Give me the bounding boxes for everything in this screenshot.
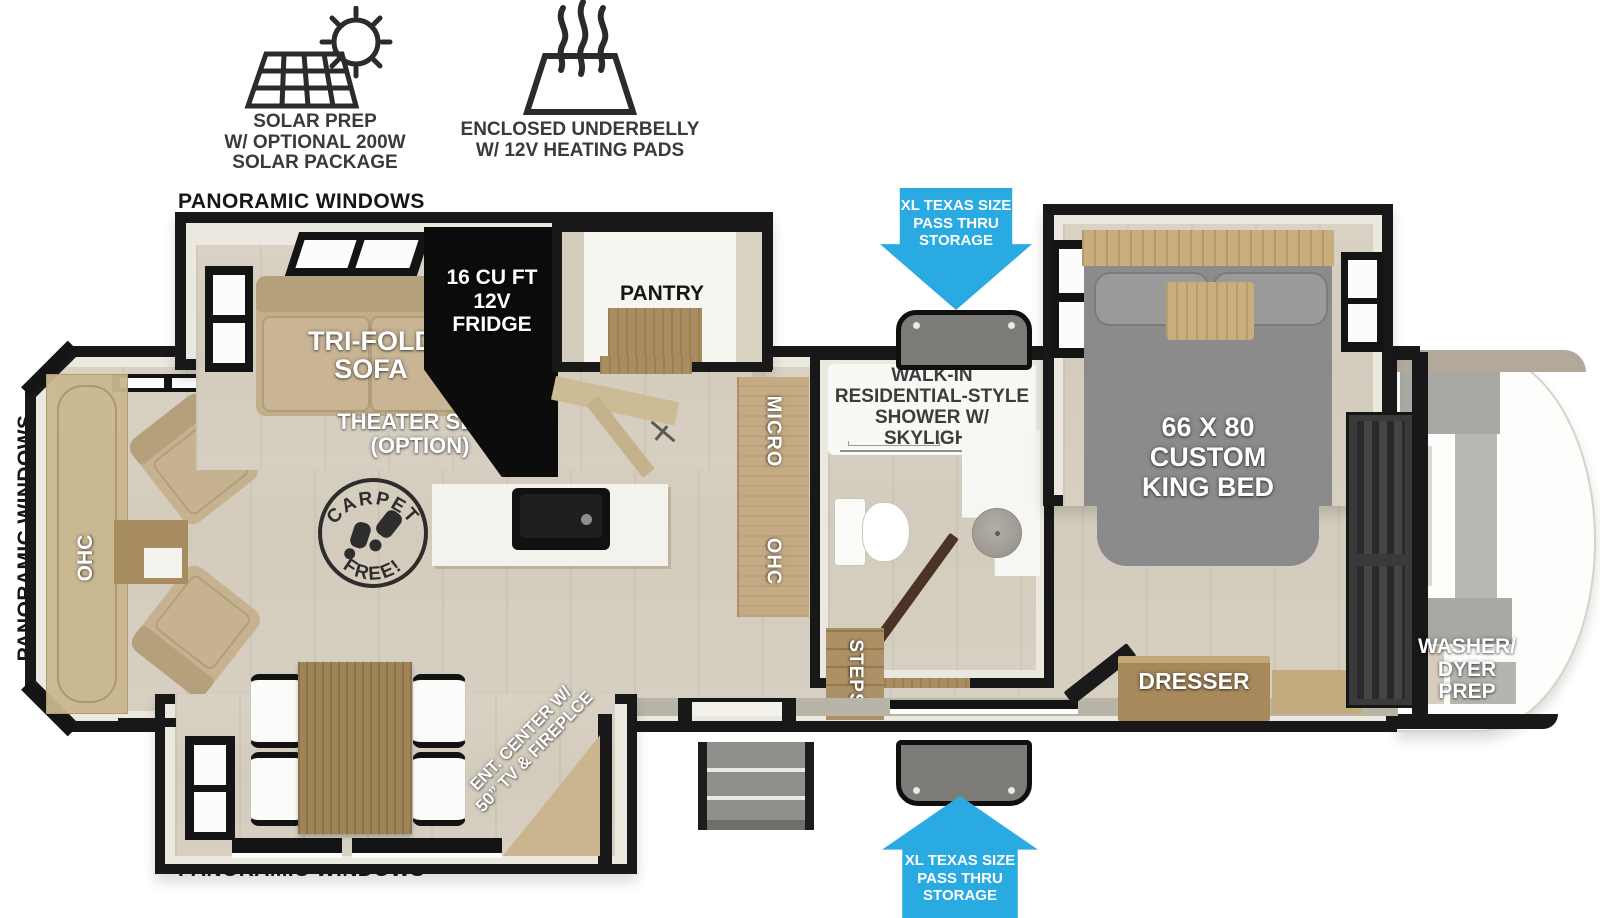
storage-callout-arrow-bottom: XL TEXAS SIZE PASS THRU STORAGE	[882, 796, 1038, 918]
underbelly-label: ENCLOSED UNDERBELLY W/ 12V HEATING PADS	[430, 120, 730, 161]
washer-dryer-prep-label: WASHER/ DYER PREP	[1396, 636, 1538, 704]
dinette-slide-window-icon	[352, 838, 502, 853]
pass-thru-storage-door-bottom	[896, 740, 1032, 806]
entry-steps	[698, 742, 814, 830]
boot-print-icon	[343, 507, 405, 560]
bath-sink-bowl-icon	[972, 508, 1022, 558]
bed-blanket-fold	[1166, 282, 1254, 340]
entry-door-frame	[678, 698, 692, 726]
toilet-bowl-icon	[862, 502, 910, 562]
solar-panel-sun-icon	[238, 6, 408, 114]
dinette-slide-end-wall	[598, 714, 612, 866]
king-bed-label: 66 X 80 CUSTOM KING BED	[1108, 412, 1308, 503]
dinette-chair	[412, 674, 466, 748]
pantry-door-opening	[600, 356, 692, 374]
pass-thru-storage-door-top	[896, 310, 1032, 370]
bed-headboard-shelf	[1082, 230, 1334, 266]
bottom-wall-window-icon	[890, 700, 1078, 709]
dinette-window-icon	[185, 736, 235, 840]
entry-door-frame	[782, 698, 796, 726]
dresser-label: DRESSER	[1118, 668, 1270, 695]
side-table	[114, 520, 188, 584]
storage-callout-text-top: XL TEXAS SIZE PASS THRU STORAGE	[880, 188, 1032, 250]
slide-window-icon	[285, 232, 431, 276]
storage-callout-arrow-top: XL TEXAS SIZE PASS THRU STORAGE	[880, 188, 1032, 310]
pantry-label: PANTRY	[562, 282, 762, 306]
micro-label: MICRO	[762, 387, 785, 477]
carpet-free-badge: CARPET FREE!	[314, 474, 432, 592]
front-cabinet	[1455, 434, 1497, 598]
dinette-table	[298, 662, 412, 834]
dinette-slide-window-pane	[352, 853, 502, 858]
panoramic-windows-label-top: PANORAMIC WINDOWS	[178, 190, 425, 214]
dinette-chair	[250, 752, 304, 826]
dinette-slide-window-icon	[232, 838, 342, 853]
dinette-slide-window-pane	[232, 853, 342, 858]
slide-corner-trim	[118, 718, 176, 727]
fridge-label: 16 CU FT 12V FRIDGE	[430, 266, 554, 337]
slide-side-window-icon	[205, 266, 253, 372]
heating-pad-icon	[515, 0, 645, 118]
rv-floorplan-diagram: SOLAR PREP W/ OPTIONAL 200W SOLAR PACKAG…	[0, 0, 1600, 918]
king-bed-foot	[1097, 506, 1319, 566]
kitchen-island	[432, 484, 668, 566]
entry-door-frame	[692, 698, 782, 702]
dinette-chair	[250, 674, 304, 748]
island-sink	[512, 488, 610, 550]
rear-ohc-label: OHC	[74, 502, 98, 614]
storage-callout-text-bottom: XL TEXAS SIZE PASS THRU STORAGE	[882, 796, 1038, 905]
bottom-wall-window-pane	[890, 709, 1078, 714]
bedroom-window-icon	[1341, 252, 1385, 352]
solar-prep-label: SOLAR PREP W/ OPTIONAL 200W SOLAR PACKAG…	[165, 112, 465, 174]
kitchen-ohc-label: OHC	[762, 517, 785, 607]
